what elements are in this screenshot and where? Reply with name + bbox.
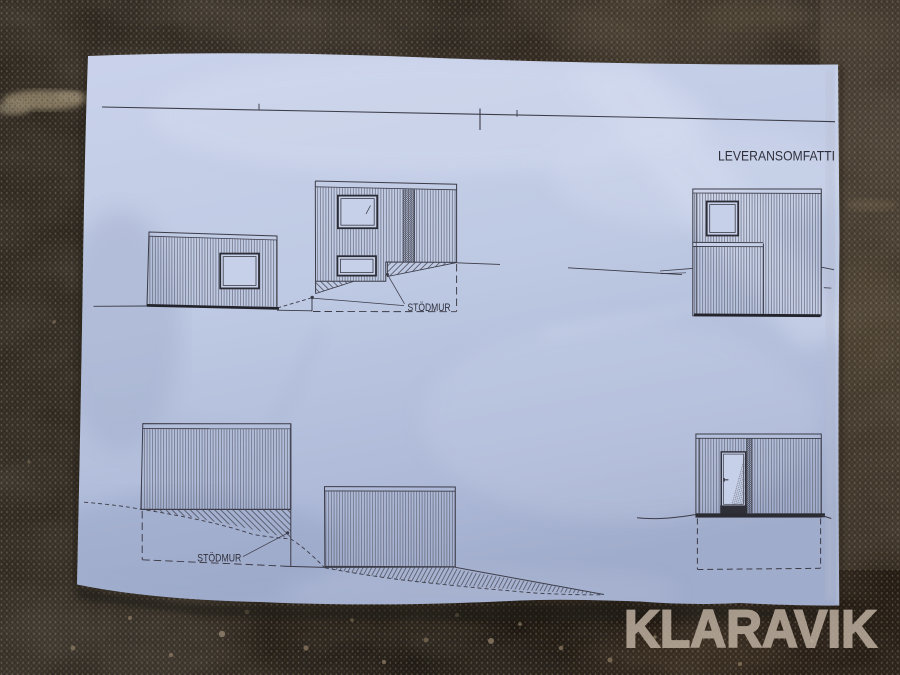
svg-text:KLARAVIK: KLARAVIK (624, 600, 877, 659)
svg-text:STÖDMUR: STÖDMUR (408, 302, 451, 314)
svg-text:LEVERANSOMFATTI: LEVERANSOMFATTI (718, 148, 835, 163)
svg-text:STÖDMUR: STÖDMUR (197, 552, 241, 564)
